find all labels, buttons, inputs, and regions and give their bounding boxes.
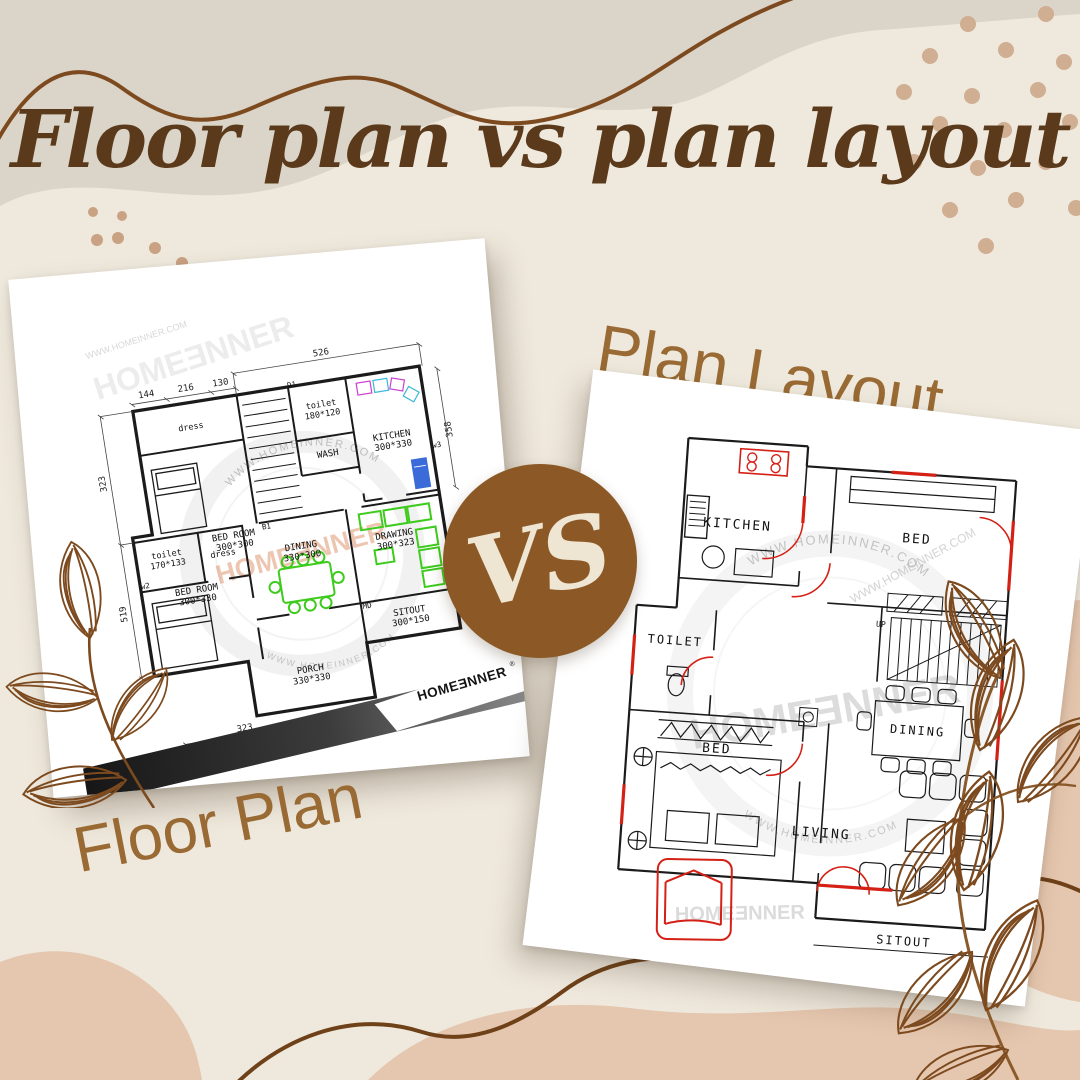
dim-left-lower: 519 — [118, 605, 130, 623]
dim-seg3: 130 — [212, 377, 230, 389]
floor-plan-drawing: WWW.HOMEINNER.COM WWW.HOMEINNER.COM HOME… — [8, 238, 530, 798]
poster-title: Floor plan vs plan layout — [0, 92, 1080, 186]
dim-seg1: 144 — [138, 389, 156, 401]
room-dress-top: dress — [178, 421, 205, 435]
tag-w2: w2 — [140, 581, 150, 591]
room-wash: WASH — [316, 448, 339, 461]
room-kitchen: KITCHEN — [703, 515, 773, 535]
dim-left-upper: 323 — [98, 475, 110, 493]
room-sitout: SITOUT — [876, 932, 932, 950]
bottom-blob-left — [0, 951, 202, 1080]
tag-b1: B1 — [261, 521, 271, 531]
room-bed-top: BED — [902, 531, 932, 548]
plan-layout-sheet: WWW.HOMEINNER.COM WWW.HOMEINNER.COM HOME… — [523, 369, 1080, 1006]
dim-top: 526 — [312, 347, 330, 359]
room-toilet: TOILET — [647, 632, 703, 650]
stairs-up-label: UP — [876, 620, 886, 630]
plan-layout-car — [657, 859, 732, 940]
tag-d1: D1 — [286, 380, 296, 390]
plan-layout-drawing: WWW.HOMEINNER.COM WWW.HOMEINNER.COM HOME… — [523, 369, 1080, 1006]
floor-plan-sheet: WWW.HOMEINNER.COM WWW.HOMEINNER.COM HOME… — [8, 238, 530, 798]
dim-seg2: 216 — [177, 383, 195, 395]
room-dining: DINING — [890, 722, 946, 740]
dim-right: 358 — [443, 420, 455, 438]
vs-badge: VS — [443, 464, 637, 658]
vs-badge-label: VS — [460, 499, 621, 623]
floor-plan-watermark: WWW.HOMEINNER.COM WWW.HOMEINNER.COM HOME… — [82, 289, 432, 701]
tag-w3: w3 — [432, 440, 442, 450]
poster-canvas: Floor plan vs plan layout WWW.HOMEINNER.… — [0, 0, 1080, 1080]
watermark-logo-bottom: HOMEƎNNER — [675, 902, 806, 926]
room-bed-bottom: BED — [702, 741, 732, 758]
